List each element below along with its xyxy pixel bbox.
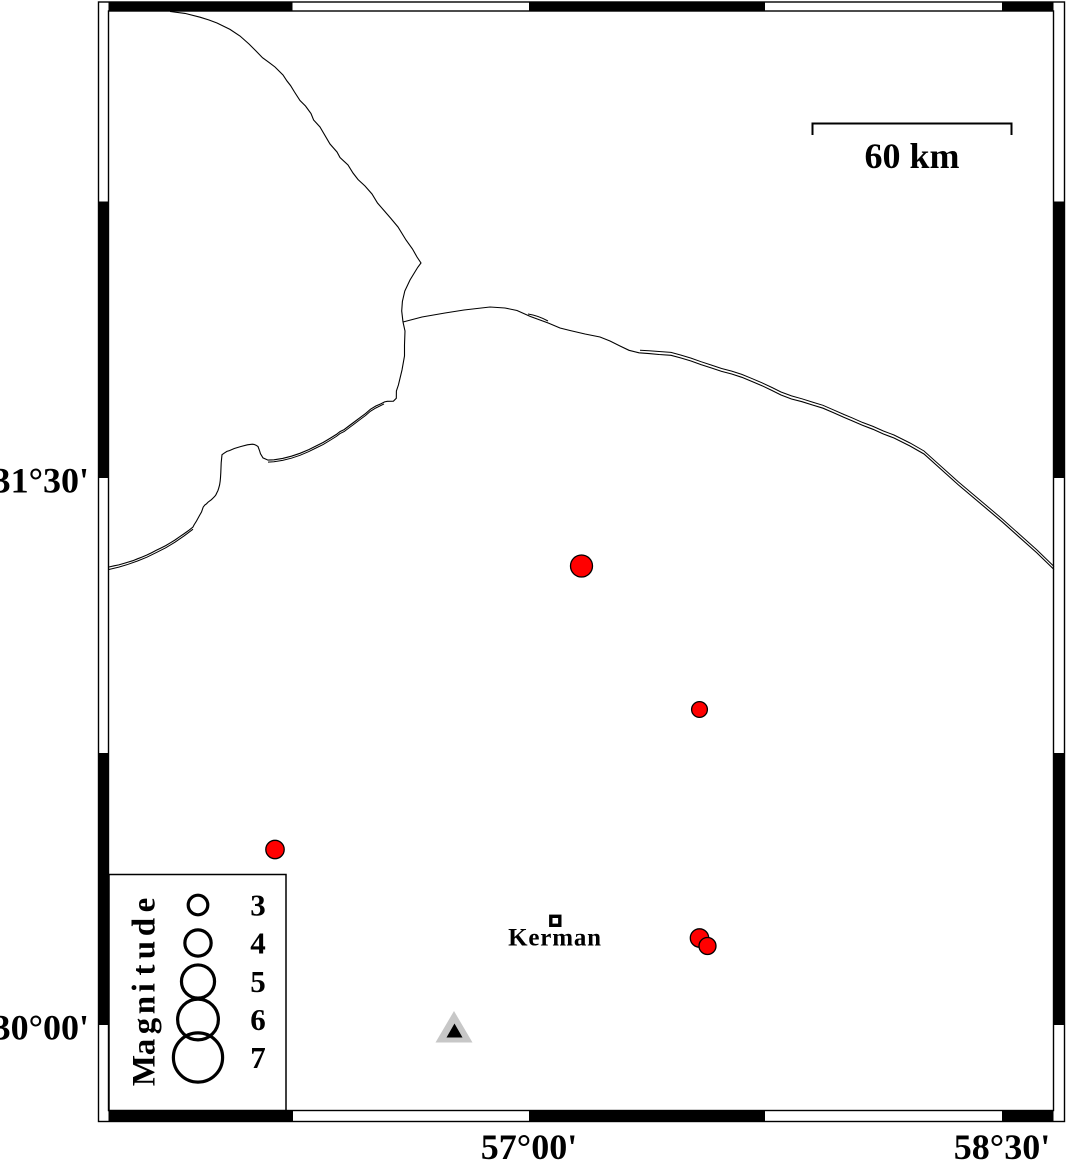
svg-text:i: i	[127, 983, 163, 992]
svg-text:t: t	[127, 965, 163, 976]
svg-text:4: 4	[250, 926, 266, 961]
svg-text:5: 5	[250, 964, 266, 999]
svg-text:31°30': 31°30'	[0, 461, 89, 501]
svg-text:n: n	[127, 996, 163, 1014]
svg-text:u: u	[127, 941, 163, 959]
svg-text:7: 7	[250, 1040, 266, 1075]
svg-text:58°30': 58°30'	[954, 1127, 1050, 1160]
svg-text:3: 3	[250, 888, 266, 923]
svg-text:M: M	[127, 1055, 163, 1086]
svg-text:60 km: 60 km	[864, 136, 959, 176]
svg-text:57°00': 57°00'	[481, 1127, 577, 1160]
svg-text:d: d	[127, 918, 163, 936]
svg-text:30°00': 30°00'	[0, 1007, 89, 1047]
svg-text:Kerman: Kerman	[508, 925, 602, 952]
svg-text:e: e	[127, 898, 163, 913]
svg-text:a: a	[127, 1039, 163, 1056]
svg-text:g: g	[127, 1017, 163, 1034]
svg-text:6: 6	[250, 1002, 266, 1037]
